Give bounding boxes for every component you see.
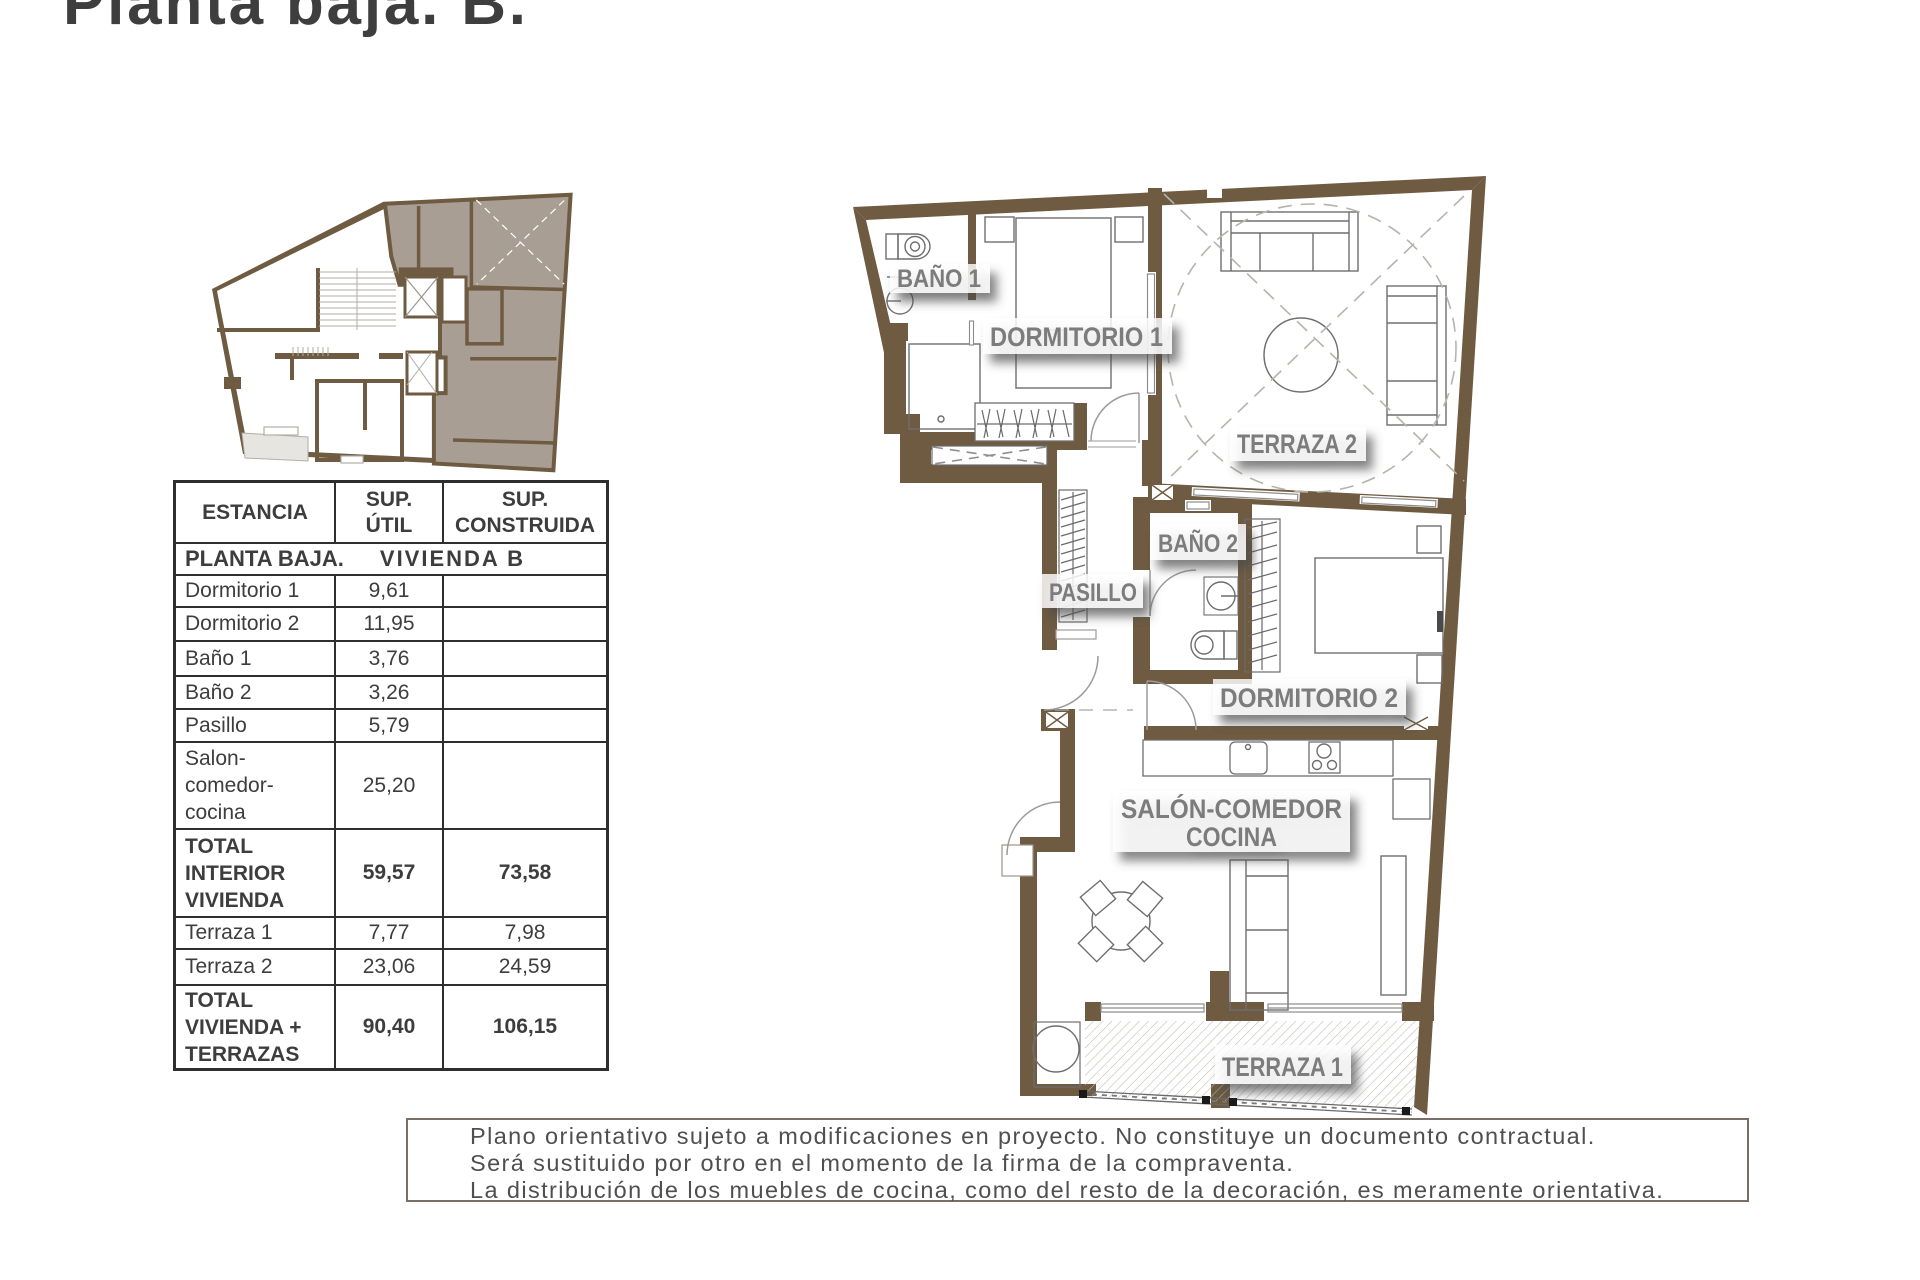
- svg-text:COCINA: COCINA: [1186, 822, 1277, 852]
- svg-text:PASILLO: PASILLO: [1049, 579, 1137, 607]
- svg-text:DORMITORIO 2: DORMITORIO 2: [1220, 683, 1398, 713]
- svg-text:DORMITORIO 1: DORMITORIO 1: [990, 322, 1163, 352]
- svg-text:BAÑO 2: BAÑO 2: [1158, 528, 1238, 558]
- svg-text:SALÓN-COMEDOR: SALÓN-COMEDOR: [1121, 793, 1342, 824]
- svg-text:TERRAZA 1: TERRAZA 1: [1222, 1052, 1343, 1082]
- svg-text:TERRAZA 2: TERRAZA 2: [1237, 429, 1357, 459]
- svg-text:BAÑO 1: BAÑO 1: [897, 263, 981, 293]
